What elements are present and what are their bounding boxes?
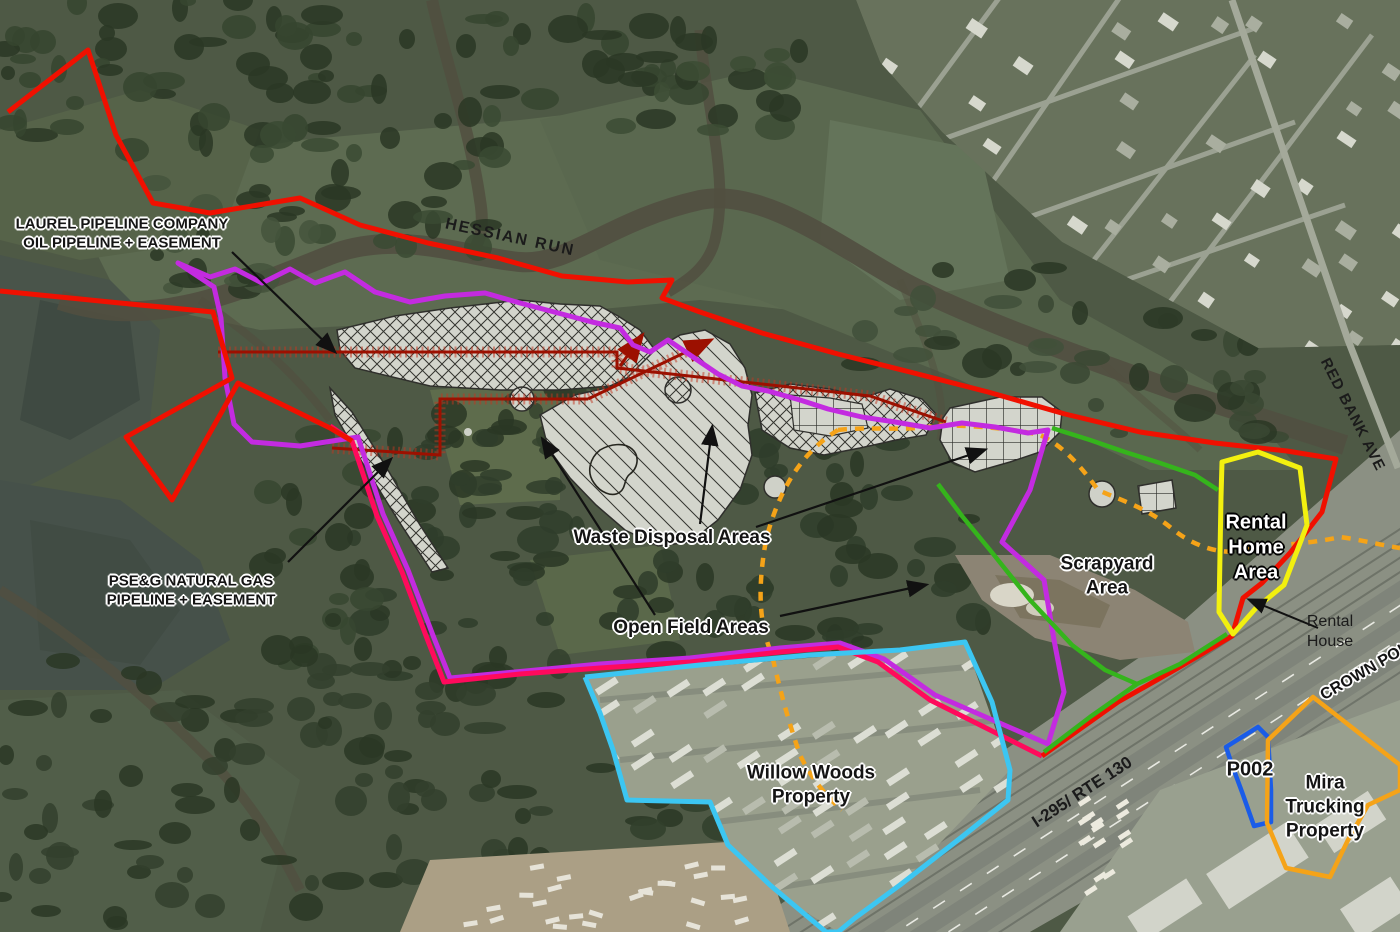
site-aerial-map: LAUREL PIPELINE COMPANYOIL PIPELINE + EA… xyxy=(0,0,1400,932)
map-canvas xyxy=(0,0,1400,932)
